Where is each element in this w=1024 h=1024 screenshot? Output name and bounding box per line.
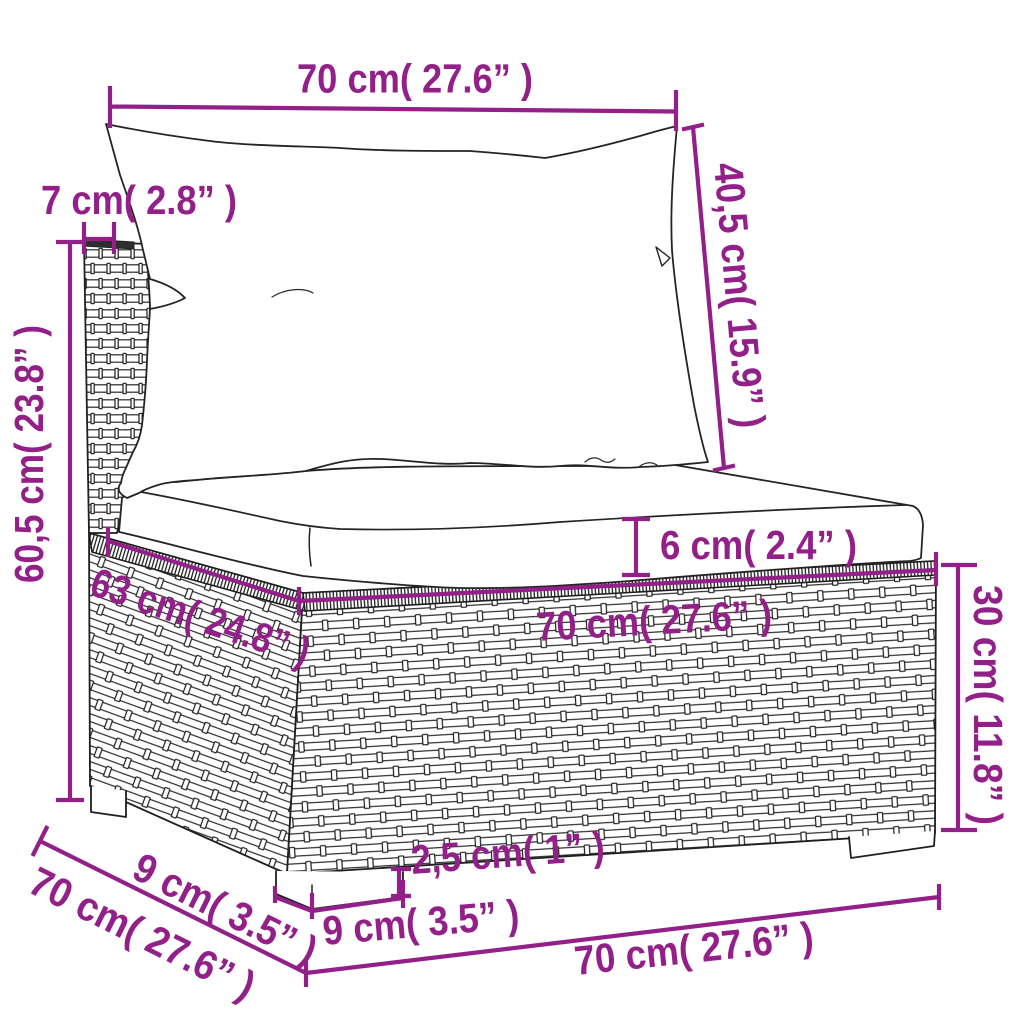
svg-text:60,5 cm( 23.8” ): 60,5 cm( 23.8” ): [6, 325, 52, 583]
svg-text:70 cm( 27.6” ): 70 cm( 27.6” ): [297, 56, 533, 102]
svg-text:7 cm( 2.8” ): 7 cm( 2.8” ): [41, 177, 237, 223]
svg-text:30 cm( 11.8” ): 30 cm( 11.8” ): [965, 585, 1011, 825]
svg-text:6 cm( 2.4” ): 6 cm( 2.4” ): [660, 522, 857, 568]
